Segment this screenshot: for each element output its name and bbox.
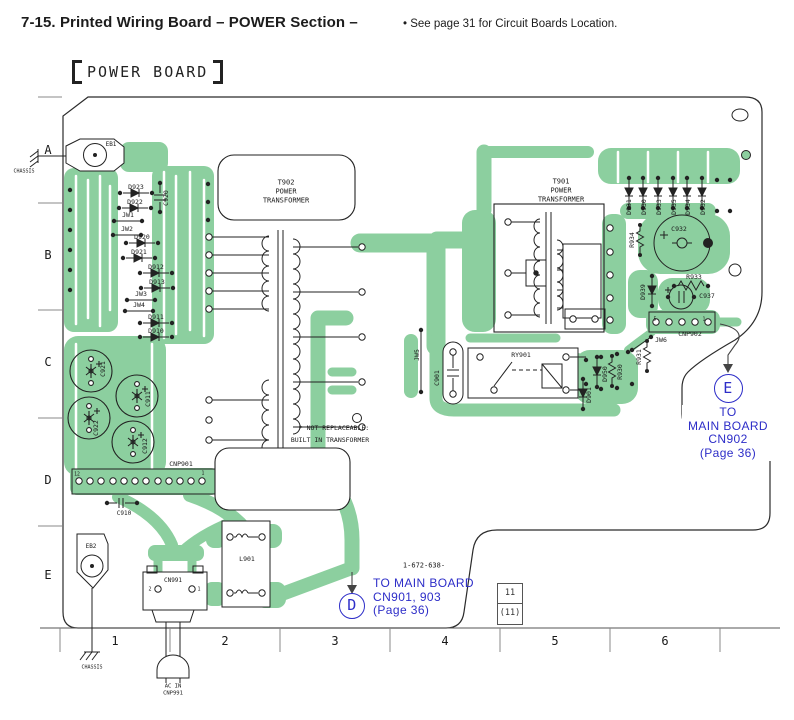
component-label: D901 xyxy=(586,387,593,403)
component-label: JW1 xyxy=(122,212,134,219)
component-label: CHASSIS xyxy=(13,170,34,175)
component-label: C911 xyxy=(145,391,152,407)
grid-row-label: B xyxy=(44,249,51,261)
component-label: JW6 xyxy=(655,337,667,344)
grid-col-label: 6 xyxy=(661,635,668,647)
component-label: 5 xyxy=(654,319,657,324)
component-label: JW4 xyxy=(133,302,145,309)
component-label: D939 xyxy=(640,284,647,300)
component-label: 12 xyxy=(74,474,80,479)
component-label: L901 xyxy=(239,556,255,563)
component-label: C912 xyxy=(142,438,149,454)
component-label: 1 xyxy=(202,473,205,478)
component-label: R933 xyxy=(686,274,702,281)
component-label: CN991 xyxy=(164,578,182,584)
component-label: EB1 xyxy=(106,142,117,148)
component-label: D933 xyxy=(656,199,663,215)
component-label: 1 xyxy=(703,319,706,324)
grid-col-label: 2 xyxy=(221,635,228,647)
grid-row-label: A xyxy=(44,144,51,156)
component-label: CNP991 xyxy=(163,691,183,697)
annotation-line: (Page 36) xyxy=(682,447,774,461)
component-label: D920 xyxy=(134,234,150,241)
component-label: D912 xyxy=(148,264,164,271)
page-ref-box: 11 (11) xyxy=(497,583,523,625)
component-label: CNP902 xyxy=(678,331,701,338)
circled-ref-d: D xyxy=(339,593,365,619)
component-label: D921 xyxy=(131,249,147,256)
component-label: D931 xyxy=(626,199,633,215)
component-label: TRANSFORMER xyxy=(538,197,584,204)
component-label: CHASSIS xyxy=(81,666,102,671)
component-label: C920 xyxy=(163,190,170,206)
component-label: C932 xyxy=(671,226,687,233)
grid-col-label: 3 xyxy=(331,635,338,647)
component-label: JW2 xyxy=(121,226,133,233)
component-label: EB2 xyxy=(86,544,97,550)
component-label: AC IN xyxy=(165,684,182,690)
component-label: TRANSFORMER xyxy=(263,198,309,205)
component-label: D935 xyxy=(671,199,678,215)
grid-col-label: 5 xyxy=(551,635,558,647)
circled-ref-e: E xyxy=(714,374,743,403)
annotation-line: TO MAIN BOARD xyxy=(373,577,474,591)
component-label: C937 xyxy=(699,293,715,300)
component-label: C921 xyxy=(100,361,107,377)
component-label: 2 xyxy=(148,588,151,593)
component-label: T902 xyxy=(278,180,295,187)
component-label: R930 xyxy=(617,364,624,380)
component-label: R934 xyxy=(629,232,636,248)
grid-row-label: D xyxy=(44,474,51,486)
annotation-line: MAIN BOARD xyxy=(682,420,774,434)
grid-row-label: C xyxy=(44,356,51,368)
annotation-to-main-board-cn902: E TO MAIN BOARD CN902 (Page 36) xyxy=(682,374,774,461)
grid-row-label: E xyxy=(44,569,51,581)
component-label: D911 xyxy=(148,314,164,321)
component-label: 1-672-638- xyxy=(403,563,445,570)
component-label: POWER xyxy=(550,188,571,195)
component-label: RY901 xyxy=(511,352,531,359)
component-label: 1 xyxy=(197,588,200,593)
grid-col-label: 1 xyxy=(111,635,118,647)
component-label: D932 xyxy=(700,199,707,215)
annotation-line: CN901, 903 xyxy=(373,591,474,605)
component-label: D910 xyxy=(148,328,164,335)
page-ref-bottom: (11) xyxy=(498,604,522,623)
component-label: D950 xyxy=(602,366,609,382)
component-label: C922 xyxy=(93,420,100,436)
component-label: D930 xyxy=(641,199,648,215)
component-label: JW3 xyxy=(135,291,147,298)
grid-col-label: 4 xyxy=(441,635,448,647)
page-ref-top: 11 xyxy=(498,584,522,604)
component-label: CNP901 xyxy=(169,461,192,468)
component-label: D913 xyxy=(149,279,165,286)
component-label: * NOT REPLACEABLE: xyxy=(299,425,369,432)
annotation-line: CN902 xyxy=(682,433,774,447)
manual-page: 7-15. Printed Wiring Board – POWER Secti… xyxy=(0,0,794,720)
component-label: BUILT IN TRANSFORMER xyxy=(291,437,369,444)
component-label: JW5 xyxy=(414,349,421,361)
component-label: C910 xyxy=(117,511,131,517)
annotation-line: TO xyxy=(682,406,774,420)
component-label: D934 xyxy=(685,199,692,215)
component-label: C901 xyxy=(434,370,441,386)
component-label: D923 xyxy=(128,184,144,191)
component-label: POWER xyxy=(275,189,296,196)
component-label: T901 xyxy=(553,179,570,186)
component-label: D922 xyxy=(127,199,143,206)
component-label: R931 xyxy=(636,349,643,365)
annotation-line: (Page 36) xyxy=(373,604,474,618)
